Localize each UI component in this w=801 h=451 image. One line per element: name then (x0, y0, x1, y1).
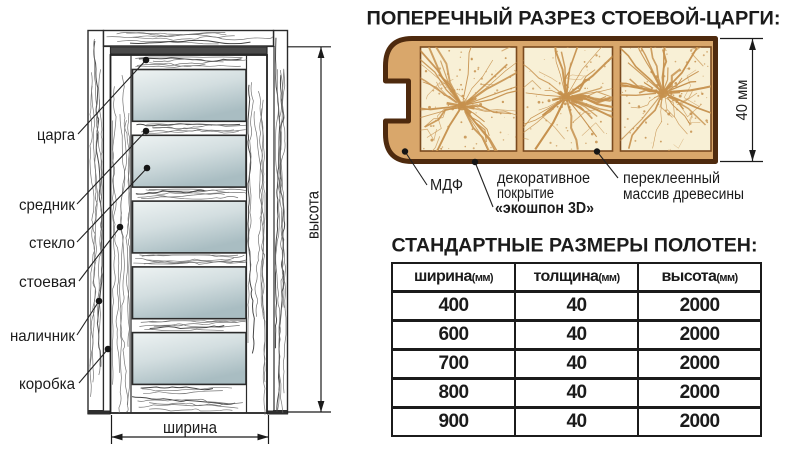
speck (625, 90, 626, 91)
speck (587, 95, 590, 98)
speck (558, 92, 560, 94)
speck (432, 90, 434, 92)
label-srednik: средник (19, 197, 76, 214)
speck (688, 67, 690, 69)
speck (504, 117, 505, 118)
speck (587, 70, 588, 71)
speck (676, 109, 678, 111)
speck (360, 79, 363, 82)
speck (584, 61, 586, 63)
table-cell: 40 (515, 292, 638, 321)
speck (376, 73, 378, 75)
speck (624, 126, 626, 128)
speck (650, 71, 652, 73)
speck (590, 61, 592, 63)
speck (706, 121, 708, 123)
label-core-2: массив древесины (623, 186, 744, 203)
speck (697, 95, 699, 97)
size-table: ширина(мм) толщина(мм) высота(мм) 400402… (391, 262, 762, 437)
speck (447, 126, 449, 128)
speck (706, 51, 708, 53)
speck (568, 106, 570, 108)
speck (690, 50, 692, 52)
speck (630, 48, 631, 49)
speck (564, 84, 566, 86)
speck (626, 95, 628, 97)
speck (505, 57, 507, 59)
column-unit: (мм) (598, 272, 619, 284)
speck (510, 88, 512, 90)
size-table-body: 4004020006004020007004020008004020009004… (392, 292, 761, 437)
arrow-up (749, 39, 756, 50)
speck (561, 106, 563, 108)
speck (494, 76, 496, 78)
speck (645, 121, 647, 123)
speck (440, 148, 442, 150)
speck (448, 50, 450, 52)
speck (549, 87, 551, 89)
speck (561, 94, 562, 95)
speck (568, 98, 569, 99)
column-label: ширина (414, 268, 472, 285)
speck (460, 57, 461, 58)
speck (591, 133, 594, 136)
anchor-dot-core (594, 148, 600, 154)
speck (573, 122, 574, 123)
speck (549, 83, 551, 85)
speck (491, 116, 493, 118)
anchor-dot-steklo (144, 165, 151, 172)
table-cell: 2000 (638, 350, 761, 379)
arrow-left (112, 434, 123, 441)
table-cell: 2000 (638, 321, 761, 350)
speck (579, 95, 582, 98)
label-mdf: МДФ (430, 177, 463, 194)
dimension-width: ширина (112, 415, 269, 444)
speck (556, 101, 558, 103)
arrow-right (258, 434, 269, 441)
speck (665, 109, 667, 111)
speck (494, 92, 495, 93)
speck (457, 89, 458, 90)
speck (579, 112, 580, 113)
speck (588, 113, 590, 115)
speck (669, 91, 672, 94)
speck (657, 92, 658, 93)
speck (500, 132, 502, 134)
table-row: 800402000 (392, 379, 761, 408)
speck (475, 99, 476, 100)
speck (669, 112, 670, 113)
label-nalichnik: наличник (10, 328, 76, 345)
speck (508, 134, 509, 135)
arrow-down (749, 150, 756, 161)
speck (556, 51, 558, 53)
speck (460, 121, 462, 123)
speck (513, 117, 515, 119)
speck (446, 82, 448, 84)
speck (536, 96, 537, 97)
speck (442, 146, 444, 148)
glass-pane (133, 70, 247, 122)
glass-pane (133, 267, 247, 319)
dimension-thickness: 40 мм (720, 39, 763, 162)
speck (470, 97, 473, 100)
speck (687, 68, 688, 69)
speck (675, 61, 677, 63)
speck (703, 76, 704, 77)
speck (500, 112, 502, 114)
speck (471, 58, 473, 60)
speck (701, 93, 703, 95)
table-cell: 2000 (638, 408, 761, 437)
speck (608, 61, 609, 62)
column-unit: (мм) (716, 272, 737, 284)
table-row: 900402000 (392, 408, 761, 437)
speck (491, 74, 493, 76)
speck (448, 105, 449, 106)
table-cell: 800 (392, 379, 515, 408)
speck (505, 67, 507, 69)
dimension-height: высота (287, 47, 331, 412)
table-title: СТАНДАРТНЫЕ РАЗМЕРЫ ПОЛОТЕН: (392, 236, 758, 257)
speck (672, 100, 674, 102)
frame-strip-left (104, 47, 111, 414)
speck (447, 73, 449, 75)
speck (549, 142, 551, 144)
speck (706, 97, 707, 98)
speck (548, 99, 551, 102)
speck (526, 106, 528, 108)
speck (425, 70, 427, 72)
table-header-row: ширина(мм) толщина(мм) высота(мм) (392, 263, 761, 292)
speck (552, 57, 553, 58)
speck (438, 93, 440, 95)
speck (559, 82, 561, 84)
speck (694, 61, 696, 63)
label-stoevaya: стоевая (19, 274, 76, 291)
speck (638, 105, 641, 108)
glass-pane (133, 201, 247, 253)
speck (600, 86, 602, 88)
speck (574, 102, 575, 103)
speck (681, 93, 682, 94)
speck (704, 63, 705, 64)
speck (622, 138, 623, 139)
anchor-dot-nalichnik (96, 298, 103, 305)
speck (627, 118, 629, 120)
speck (599, 56, 601, 58)
table-cell: 40 (515, 379, 638, 408)
speck (587, 88, 588, 89)
speck (663, 75, 665, 77)
speck (485, 71, 486, 72)
speck (490, 147, 491, 148)
speck (624, 85, 626, 87)
glass-panels (133, 70, 247, 385)
speck (432, 125, 434, 127)
head-jamb-shadow (104, 47, 274, 54)
speck (448, 148, 449, 149)
speck (649, 97, 651, 99)
speck (544, 76, 545, 77)
speck (461, 89, 463, 91)
anchor-dot-srednik (143, 128, 150, 135)
speck (463, 100, 466, 103)
speck (423, 148, 424, 149)
speck (643, 113, 644, 114)
speck (651, 143, 652, 144)
speck (464, 146, 466, 148)
speck (658, 92, 660, 94)
speck (496, 89, 498, 91)
speck (477, 67, 479, 69)
table-cell: 40 (515, 350, 638, 379)
speck (622, 92, 623, 93)
speck (656, 84, 659, 87)
speck (472, 128, 474, 130)
speck (658, 104, 659, 105)
speck (572, 89, 574, 91)
glass-pane (133, 333, 247, 385)
speck (643, 110, 645, 112)
speck (476, 143, 478, 145)
speck (694, 101, 695, 102)
speck (571, 148, 572, 149)
speck (456, 99, 457, 100)
table-cell: 700 (392, 350, 515, 379)
speck (667, 123, 668, 124)
speck (673, 95, 674, 96)
speck (452, 89, 455, 92)
speck (473, 147, 475, 149)
speck (474, 78, 475, 79)
anchor-dot-tsarga (143, 57, 150, 64)
casing-left-base (88, 410, 105, 415)
speck (661, 121, 662, 122)
speck (556, 145, 558, 147)
speck (428, 106, 431, 109)
door-diagram: высота ширина царга средник стекло стоев… (0, 0, 360, 451)
speck (590, 105, 591, 106)
table-cell: 600 (392, 321, 515, 350)
speck (671, 88, 672, 89)
anchor-dot-coating (472, 159, 478, 165)
speck (556, 124, 557, 125)
speck (679, 95, 682, 98)
speck (544, 59, 545, 60)
speck (645, 137, 647, 139)
speck (677, 99, 679, 101)
speck (456, 75, 457, 76)
speck (723, 123, 725, 125)
column-header-width: ширина(мм) (392, 263, 515, 292)
speck (690, 112, 693, 115)
speck (510, 77, 512, 79)
speck (467, 102, 468, 103)
speck (571, 142, 572, 143)
speck (496, 111, 498, 113)
speck (459, 69, 461, 71)
speck (475, 92, 476, 93)
speck (641, 49, 643, 51)
speck (559, 84, 560, 85)
speck (640, 87, 643, 90)
speck (559, 97, 560, 98)
anchor-dot-stoevaya (117, 224, 124, 231)
speck (560, 113, 561, 114)
speck (660, 141, 662, 143)
anchor-dot-mdf (402, 148, 408, 154)
speck (552, 109, 553, 110)
speck (629, 132, 631, 134)
speck (721, 120, 722, 121)
speck (542, 102, 544, 104)
table-row: 400402000 (392, 292, 761, 321)
speck (554, 99, 556, 101)
speck (564, 102, 567, 105)
label-coating-3: «экошпон 3D» (495, 200, 594, 217)
speck (430, 125, 432, 127)
speck (441, 87, 443, 89)
speck (707, 66, 708, 67)
speck (523, 121, 524, 122)
speck (445, 87, 446, 88)
speck (590, 113, 591, 114)
speck (659, 107, 660, 108)
speck (674, 82, 677, 85)
speck (559, 108, 562, 111)
speck (692, 116, 693, 117)
speck (664, 95, 666, 97)
speck (723, 100, 725, 102)
speck (606, 133, 607, 134)
speck (633, 128, 634, 129)
speck (435, 120, 436, 121)
speck (564, 92, 567, 95)
speck (667, 94, 669, 96)
speck (460, 51, 462, 53)
speck (472, 108, 473, 109)
speck (690, 131, 692, 133)
label-steklo: стекло (29, 235, 75, 252)
casing-right-base (273, 410, 288, 415)
speck (474, 70, 476, 72)
speck (439, 67, 441, 69)
speck (584, 88, 586, 90)
speck (690, 123, 692, 125)
table-row: 700402000 (392, 350, 761, 379)
speck (464, 136, 467, 139)
speck (557, 93, 558, 94)
arrow-down (318, 401, 325, 412)
height-dimension-label: высота (305, 190, 323, 239)
speck (481, 78, 483, 80)
column-header-thickness: толщина(мм) (515, 263, 638, 292)
speck (460, 84, 462, 86)
speck (636, 127, 637, 128)
speck (745, 122, 747, 124)
speck (569, 109, 571, 111)
speck (695, 117, 697, 119)
speck (567, 86, 569, 88)
speck (567, 92, 570, 95)
speck (450, 91, 451, 92)
label-korobka: коробка (19, 376, 75, 393)
speck (666, 53, 667, 54)
frame-strip-right (267, 47, 274, 414)
speck (557, 106, 559, 108)
speck (451, 108, 454, 111)
column-unit: (мм) (472, 272, 493, 284)
speck (600, 121, 602, 123)
speck (595, 54, 597, 56)
speck (530, 128, 531, 129)
speck (676, 102, 678, 104)
speck (461, 105, 463, 107)
label-core-1: переклеенный (623, 170, 720, 187)
speck (565, 127, 567, 129)
table-cell: 2000 (638, 379, 761, 408)
speck (435, 107, 436, 108)
width-dimension-label: ширина (163, 418, 217, 437)
speck (634, 140, 636, 142)
speck (700, 104, 701, 105)
speck (586, 66, 588, 68)
speck (655, 75, 658, 78)
speck (455, 105, 457, 107)
speck (662, 92, 664, 94)
arrow-up (318, 47, 325, 58)
table-cell: 400 (392, 292, 515, 321)
speck (729, 65, 730, 66)
table-cell: 40 (515, 321, 638, 350)
speck (463, 98, 464, 99)
speck (602, 83, 603, 84)
speck (647, 81, 648, 82)
speck (572, 96, 574, 98)
speck (515, 136, 516, 137)
speck (495, 70, 496, 71)
speck (505, 33, 508, 36)
speck (460, 102, 462, 104)
speck (545, 112, 547, 114)
speck (655, 90, 657, 92)
speck (529, 71, 530, 72)
speck (538, 101, 541, 104)
speck (497, 72, 498, 73)
speck (595, 141, 598, 144)
speck (588, 126, 589, 127)
speck (578, 103, 579, 104)
speck (585, 50, 586, 51)
column-header-height: высота(мм) (638, 263, 761, 292)
speck (566, 100, 568, 102)
speck (651, 80, 652, 81)
speck (459, 89, 461, 91)
speck (628, 102, 630, 104)
speck (642, 117, 643, 118)
glass-pane (133, 135, 247, 187)
speck (703, 54, 705, 56)
speck (585, 143, 587, 145)
speck (560, 99, 562, 101)
speck (605, 62, 606, 63)
speck (604, 65, 606, 67)
speck (620, 54, 622, 56)
column-label: высота (661, 268, 716, 285)
speck (545, 120, 547, 122)
